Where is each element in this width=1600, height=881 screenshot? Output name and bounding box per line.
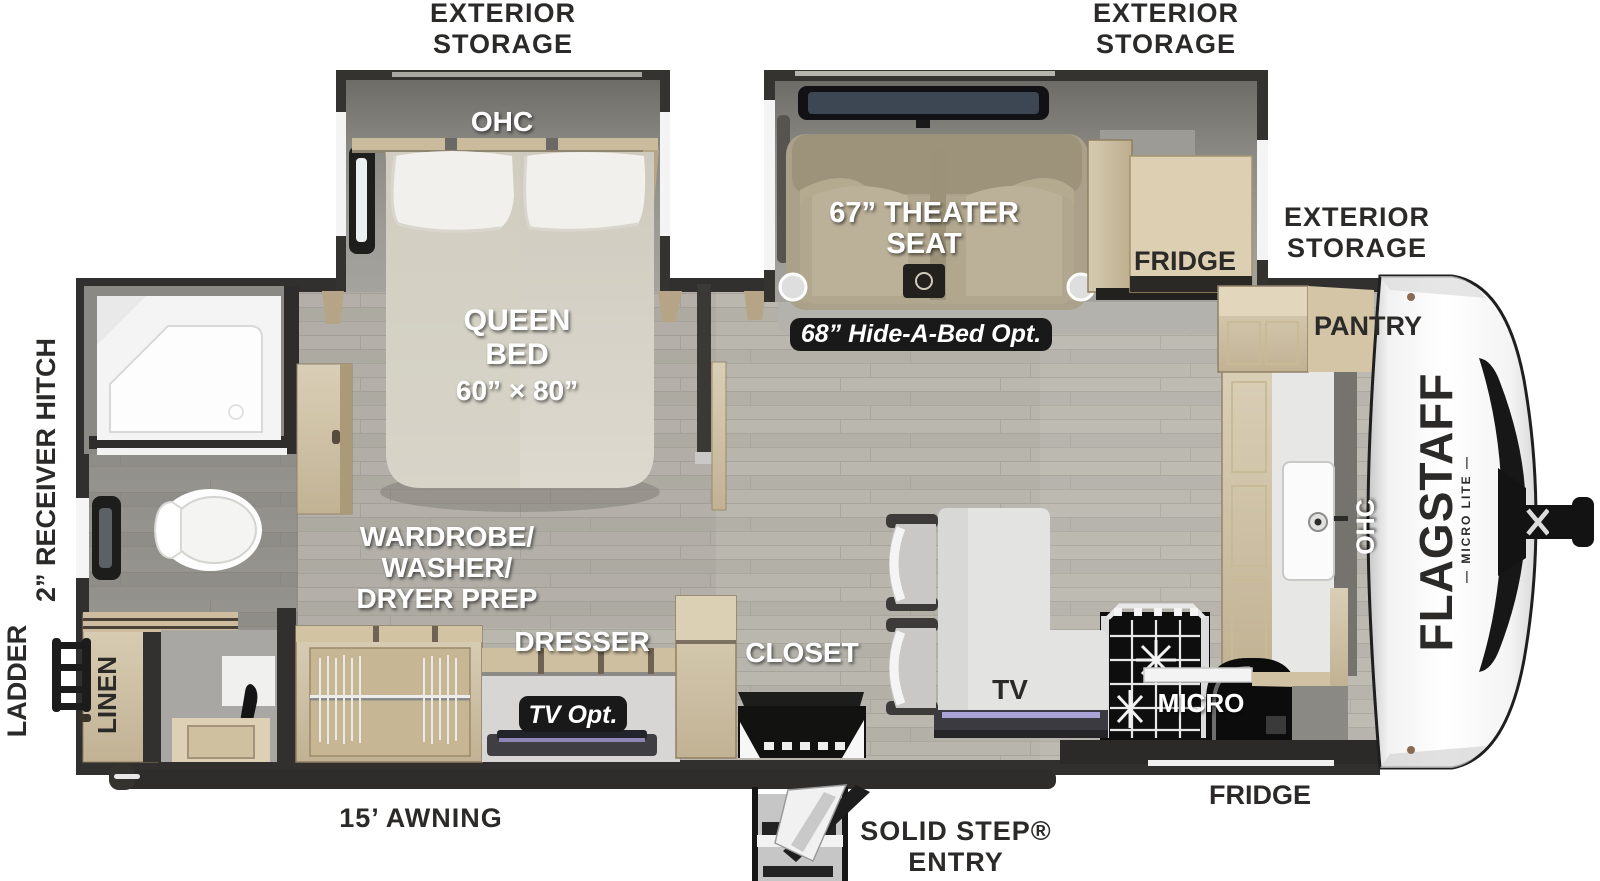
svg-text:68” Hide-A-Bed Opt.: 68” Hide-A-Bed Opt. <box>801 320 1041 348</box>
svg-text:EXTERIOR: EXTERIOR <box>1093 0 1239 28</box>
svg-text:SOLID STEP®: SOLID STEP® <box>860 816 1051 846</box>
svg-text:ENTRY: ENTRY <box>908 847 1004 877</box>
svg-text:WARDROBE/: WARDROBE/ <box>360 521 534 552</box>
svg-text:FLAGSTAFF: FLAGSTAFF <box>1410 373 1462 652</box>
svg-text:OHC: OHC <box>1352 499 1380 555</box>
svg-text:DRESSER: DRESSER <box>514 626 649 657</box>
svg-text:OHC: OHC <box>471 106 533 137</box>
svg-text:2” RECEIVER HITCH: 2” RECEIVER HITCH <box>31 338 61 602</box>
svg-text:60” × 80”: 60” × 80” <box>456 375 578 406</box>
svg-text:EXTERIOR: EXTERIOR <box>430 0 576 28</box>
svg-text:STORAGE: STORAGE <box>1287 233 1427 263</box>
svg-text:LINEN: LINEN <box>92 656 122 734</box>
svg-text:BED: BED <box>485 338 548 371</box>
svg-text:CLOSET: CLOSET <box>745 637 859 668</box>
svg-text:STORAGE: STORAGE <box>1096 29 1236 59</box>
svg-text:QUEEN: QUEEN <box>464 304 571 337</box>
svg-text:DRYER PREP: DRYER PREP <box>356 583 537 614</box>
svg-text:WASHER/: WASHER/ <box>382 552 513 583</box>
svg-text:67” THEATER: 67” THEATER <box>829 197 1019 229</box>
svg-text:TV Opt.: TV Opt. <box>529 701 618 729</box>
svg-text:MICRO: MICRO <box>1158 688 1245 718</box>
svg-text:STORAGE: STORAGE <box>433 29 573 59</box>
svg-text:EXTERIOR: EXTERIOR <box>1284 202 1430 232</box>
svg-text:15’ AWNING: 15’ AWNING <box>339 803 503 833</box>
svg-text:— MICRO LITE —: — MICRO LITE — <box>1459 455 1473 583</box>
svg-text:SEAT: SEAT <box>886 228 961 260</box>
svg-text:LADDER: LADDER <box>2 625 32 738</box>
svg-text:PANTRY: PANTRY <box>1314 311 1422 341</box>
svg-text:TV: TV <box>992 674 1028 705</box>
svg-text:FRIDGE: FRIDGE <box>1209 780 1311 810</box>
svg-text:FRIDGE: FRIDGE <box>1134 246 1236 276</box>
